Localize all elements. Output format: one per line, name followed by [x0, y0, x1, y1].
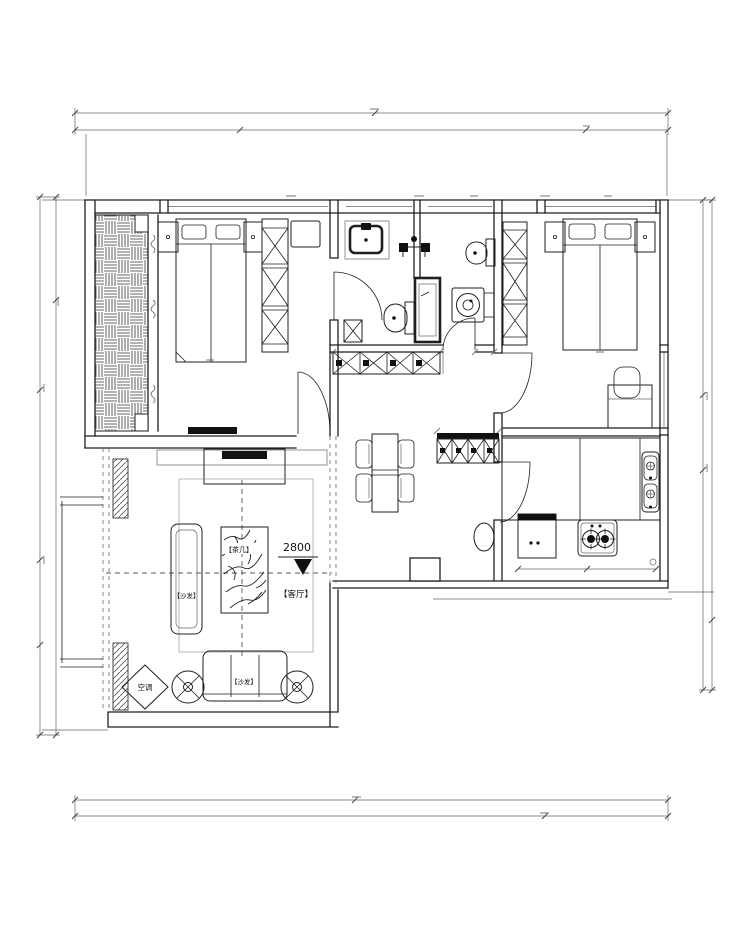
pillow [182, 225, 206, 239]
balcony [95, 215, 148, 431]
dining-chair [398, 474, 414, 502]
level-value: 2800 [283, 541, 311, 554]
dresser-cabinet [291, 221, 320, 247]
bedroom-left [158, 219, 330, 434]
window-sill-bar [188, 427, 237, 434]
air-conditioner: 空调 [122, 665, 168, 709]
desk-and-chair [608, 367, 652, 428]
toilet [466, 239, 495, 266]
toilet [384, 302, 414, 334]
dining-chair [398, 440, 414, 468]
side-table-round [172, 671, 204, 703]
floor-plan-canvas: 【茶几】 2800 【客厅】 【沙发】 【沙发】 [0, 0, 740, 950]
sofa-side: 【沙发】 [171, 524, 202, 634]
floor-drain-shaft [344, 320, 362, 342]
living-room-label: 【客厅】 [279, 589, 313, 600]
tv [222, 451, 267, 459]
entry-wall-pier [410, 558, 440, 581]
double-bed [176, 219, 246, 362]
gas-stove [578, 520, 617, 556]
tea-table-label: 【茶几】 [225, 545, 253, 554]
nightstand [158, 222, 178, 252]
floor-drain [650, 559, 656, 565]
pillow [605, 224, 631, 239]
desk-chair [614, 367, 640, 398]
ceiling-molding [179, 479, 313, 652]
bedroom-left-door [298, 372, 330, 434]
nightstand [244, 222, 262, 252]
bay-window-rail [60, 497, 103, 667]
hallway-cabinet [333, 352, 443, 374]
dining-table [372, 434, 398, 512]
wall-hatch [113, 643, 128, 710]
balcony-parquet-floor [95, 215, 148, 431]
wardrobe [262, 219, 288, 352]
kitchen-sink [642, 452, 659, 512]
kitchen-counter [502, 438, 660, 520]
refrigerator [518, 514, 556, 558]
sink-tap [361, 223, 371, 230]
nightstand [545, 222, 565, 252]
wardrobe [503, 222, 527, 345]
shoe-cabinet [437, 433, 499, 463]
kitchen-door [500, 462, 530, 522]
walls [85, 200, 672, 727]
sofa-main: 【沙发】 [203, 651, 287, 701]
washing-machine [452, 288, 494, 322]
floor-plan-drawing: 【茶几】 2800 【客厅】 【沙发】 【沙发】 [0, 0, 740, 950]
bathroom-left-door [334, 272, 382, 320]
dining-chair [356, 474, 372, 502]
kitchen [500, 438, 660, 572]
pillow [569, 224, 595, 239]
dining-chair [356, 440, 372, 468]
air-conditioner-label: 空调 [138, 682, 153, 692]
bedroom-right [500, 219, 655, 428]
wall-hatch [113, 459, 128, 518]
living-room: 【茶几】 2800 【客厅】 【沙发】 【沙发】 [60, 448, 332, 712]
tea-table: 【茶几】 [221, 527, 268, 613]
side-table-round [281, 671, 313, 703]
nightstand [635, 222, 655, 252]
sofa-side-label: 【沙发】 [174, 591, 200, 600]
bathroom-right-door [443, 318, 475, 350]
sofa-main-label: 【沙发】 [231, 677, 257, 686]
level-mark: 2800 [278, 541, 318, 575]
bathroom [334, 221, 495, 350]
shower-column [415, 278, 440, 342]
pillow [216, 225, 240, 239]
round-stool [474, 523, 494, 551]
bedroom-right-door [500, 353, 532, 413]
double-bed [563, 219, 637, 350]
